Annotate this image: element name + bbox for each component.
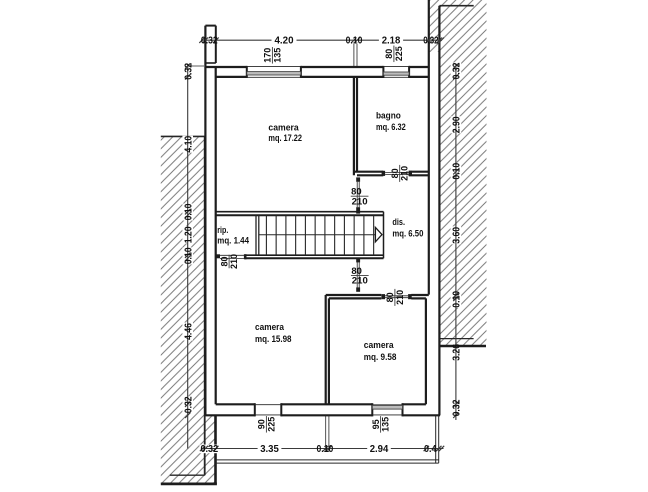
svg-text:0.10: 0.10	[183, 204, 194, 221]
svg-text:0.32: 0.32	[423, 36, 438, 47]
svg-text:0.32: 0.32	[183, 396, 194, 413]
svg-text:210: 210	[352, 275, 368, 286]
svg-text:0.10: 0.10	[183, 248, 194, 265]
svg-text:3.60: 3.60	[452, 227, 463, 244]
svg-text:0.32: 0.32	[452, 63, 463, 80]
svg-text:0.10: 0.10	[452, 163, 463, 180]
svg-text:2.94: 2.94	[370, 444, 389, 455]
svg-text:2.18: 2.18	[382, 36, 401, 47]
svg-text:210: 210	[228, 254, 239, 269]
svg-text:0.32: 0.32	[201, 36, 218, 47]
svg-text:camera: camera	[268, 123, 298, 133]
svg-text:3.26: 3.26	[452, 343, 463, 360]
svg-text:210: 210	[399, 166, 410, 181]
svg-text:0.10: 0.10	[317, 444, 334, 455]
svg-text:camera: camera	[255, 322, 284, 332]
svg-text:4.20: 4.20	[275, 36, 294, 47]
svg-text:dis.: dis.	[392, 217, 405, 227]
svg-text:0.10: 0.10	[452, 291, 463, 308]
svg-text:rip.: rip.	[217, 225, 228, 235]
svg-text:bagno: bagno	[376, 111, 401, 121]
svg-text:0.32: 0.32	[201, 444, 219, 455]
svg-text:mq. 9.58: mq. 9.58	[364, 352, 397, 362]
svg-text:3.35: 3.35	[260, 444, 279, 455]
svg-text:210: 210	[352, 195, 368, 206]
svg-text:2.90: 2.90	[452, 116, 463, 133]
svg-text:camera: camera	[364, 340, 394, 350]
svg-text:0.4: 0.4	[424, 444, 437, 455]
svg-text:225: 225	[393, 46, 404, 61]
svg-text:0.10: 0.10	[346, 36, 363, 47]
svg-text:mq. 6.32: mq. 6.32	[376, 122, 406, 132]
svg-text:0.32: 0.32	[183, 63, 194, 80]
svg-text:1.20: 1.20	[183, 227, 194, 244]
svg-text:210: 210	[394, 290, 405, 305]
svg-text:225: 225	[265, 417, 276, 432]
svg-text:mq. 1.44: mq. 1.44	[217, 235, 249, 245]
svg-text:135: 135	[380, 417, 391, 432]
svg-text:4.10: 4.10	[183, 136, 194, 153]
svg-text:mq. 6.50: mq. 6.50	[392, 229, 423, 239]
svg-text:0.32: 0.32	[452, 400, 463, 417]
svg-text:135: 135	[271, 48, 282, 63]
svg-text:mq. 17.22: mq. 17.22	[268, 133, 302, 143]
svg-text:mq. 15.98: mq. 15.98	[255, 334, 292, 344]
svg-text:4.46: 4.46	[183, 323, 194, 340]
